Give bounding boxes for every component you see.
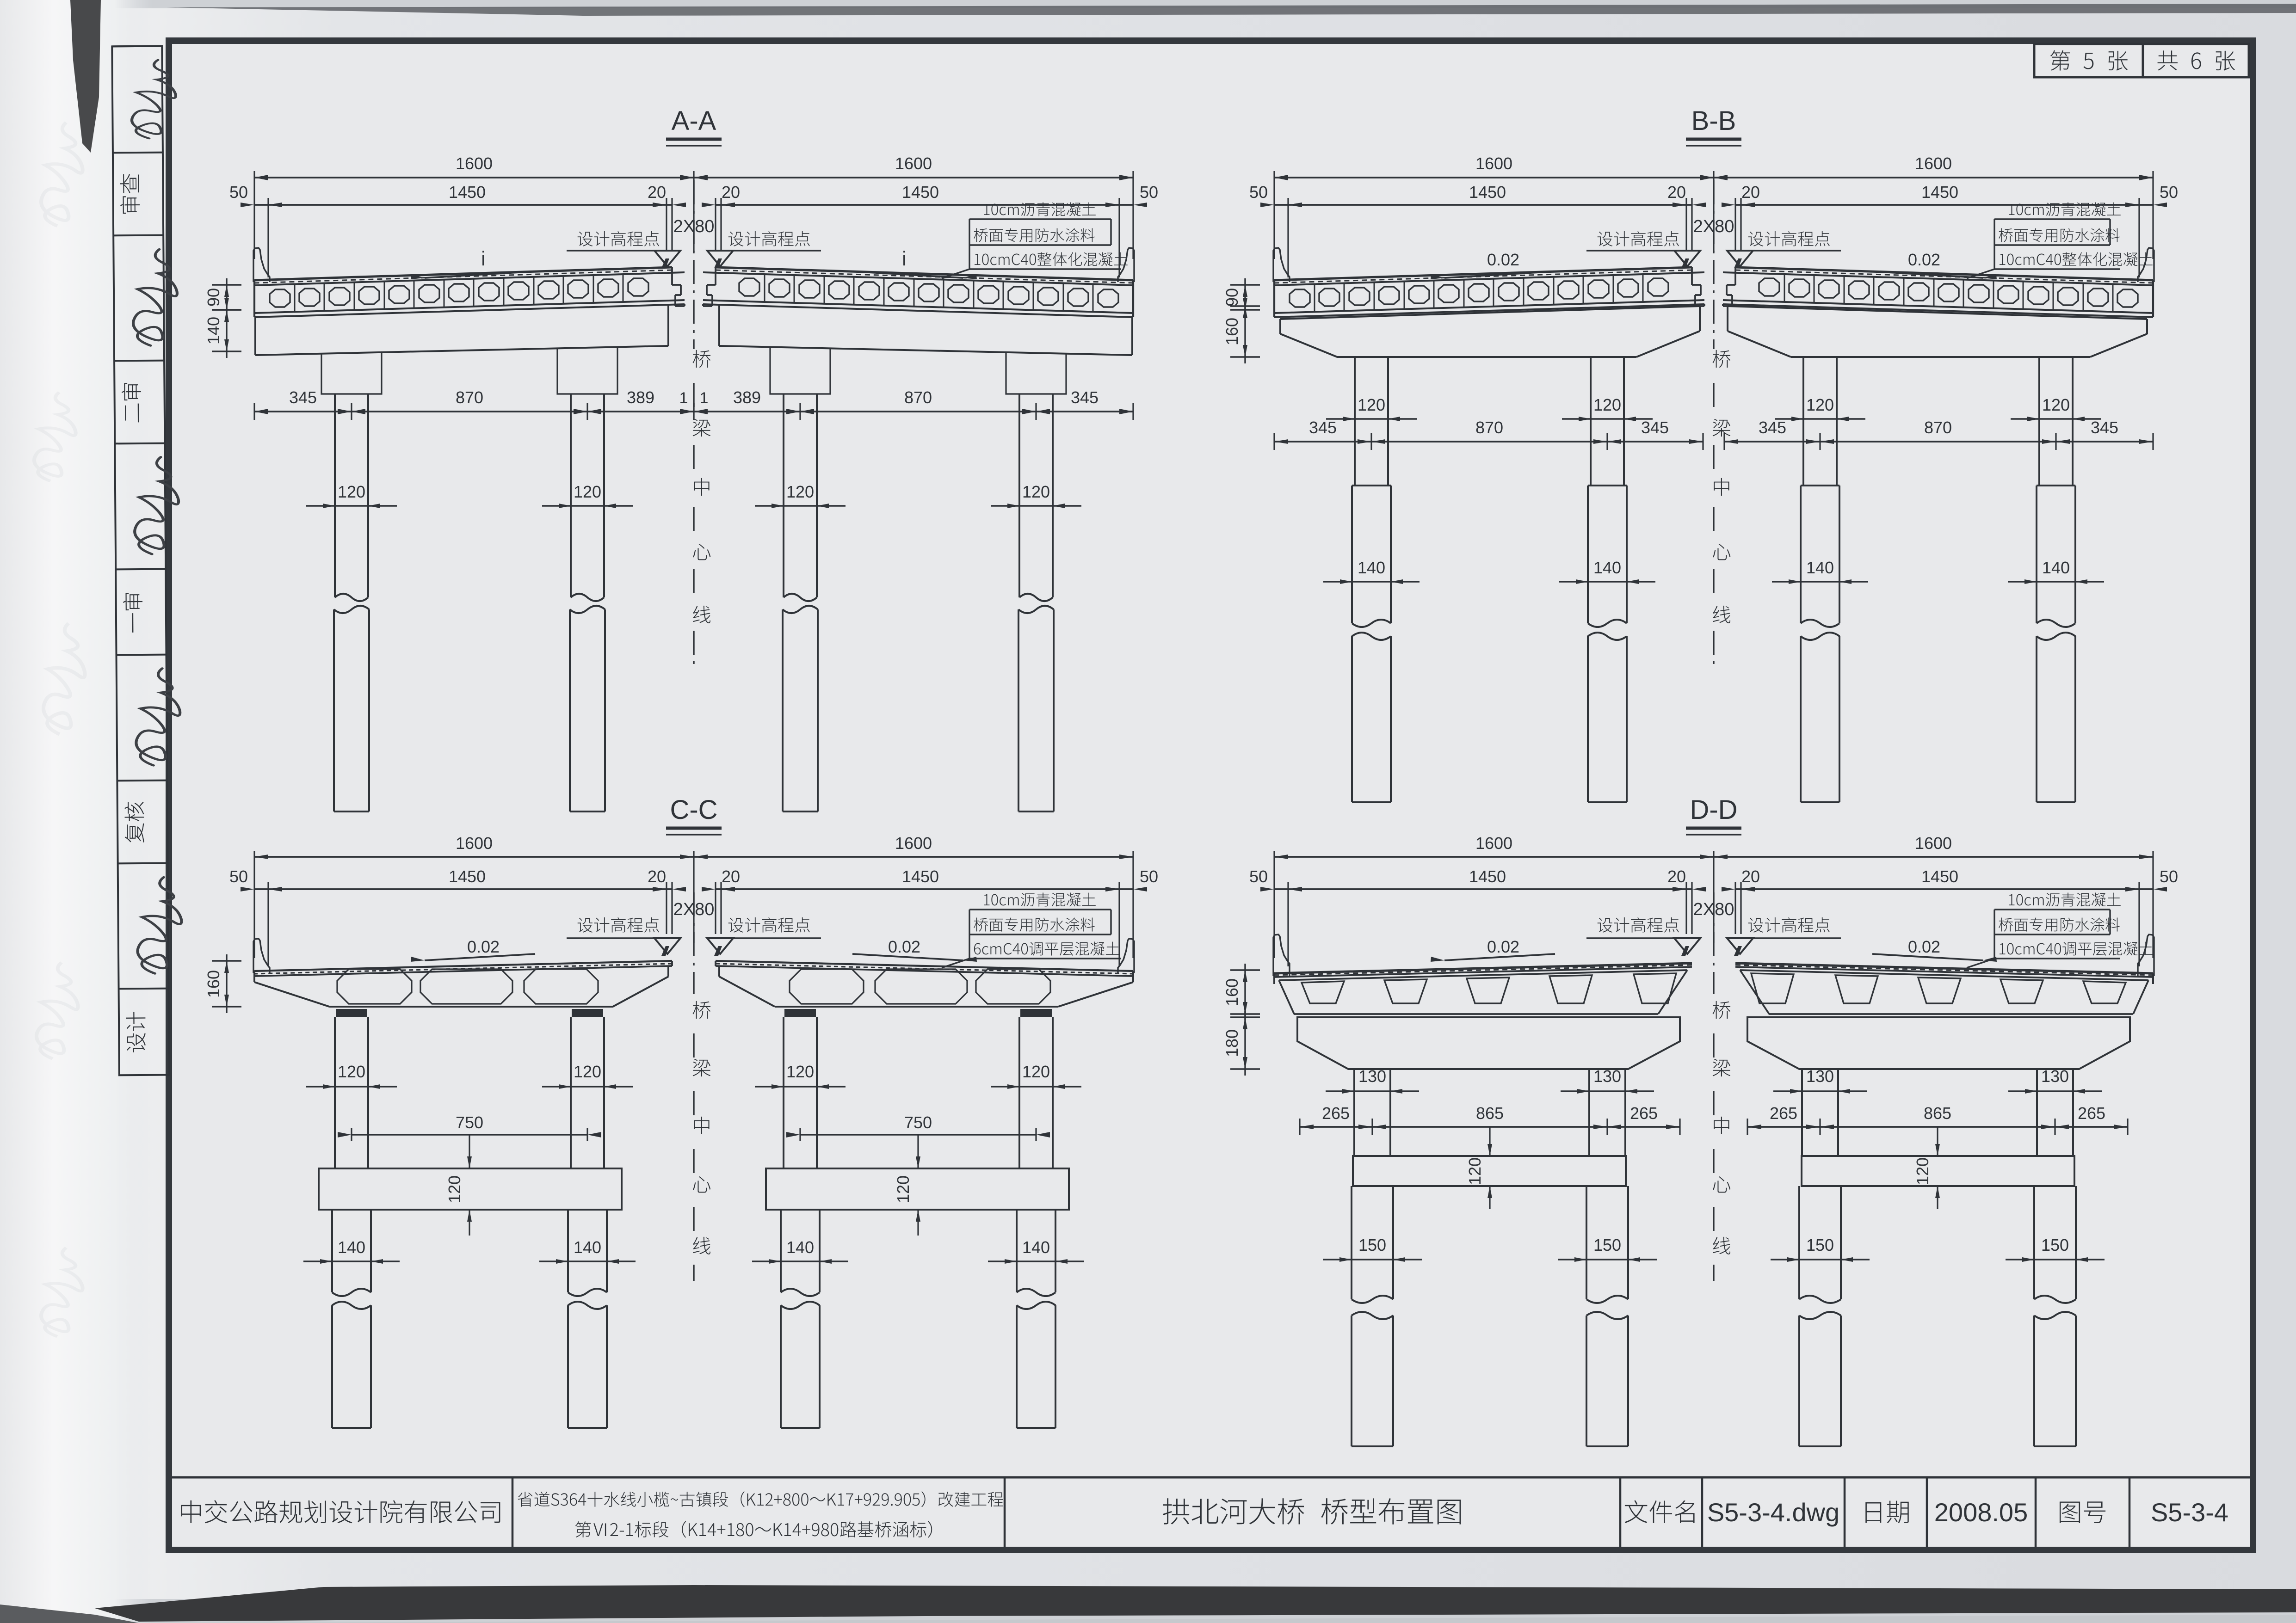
svg-text:140: 140 bbox=[338, 1238, 365, 1257]
svg-text:870: 870 bbox=[1924, 418, 1952, 437]
svg-text:A-A: A-A bbox=[672, 106, 716, 136]
svg-text:870: 870 bbox=[904, 388, 932, 407]
svg-text:0.02: 0.02 bbox=[467, 937, 500, 956]
svg-text:180: 180 bbox=[1222, 1029, 1241, 1057]
svg-text:265: 265 bbox=[1630, 1104, 1658, 1123]
svg-text:1600: 1600 bbox=[456, 834, 493, 853]
svg-text:50: 50 bbox=[229, 183, 248, 202]
svg-text:20: 20 bbox=[1667, 183, 1686, 202]
svg-text:90: 90 bbox=[204, 288, 223, 307]
svg-text:1450: 1450 bbox=[902, 183, 939, 202]
svg-text:140: 140 bbox=[1022, 1238, 1050, 1257]
svg-text:160: 160 bbox=[204, 970, 223, 998]
svg-text:865: 865 bbox=[1924, 1104, 1951, 1123]
svg-text:345: 345 bbox=[1641, 418, 1669, 437]
svg-text:1450: 1450 bbox=[449, 183, 486, 202]
svg-text:865: 865 bbox=[1476, 1104, 1504, 1123]
svg-text:2X80: 2X80 bbox=[673, 217, 715, 236]
svg-text:265: 265 bbox=[1322, 1104, 1350, 1123]
svg-text:0.02: 0.02 bbox=[888, 937, 920, 956]
svg-text:120: 120 bbox=[786, 1062, 814, 1081]
svg-text:20: 20 bbox=[1741, 867, 1760, 886]
svg-text:150: 150 bbox=[2041, 1236, 2069, 1254]
svg-text:1: 1 bbox=[679, 389, 688, 407]
svg-text:120: 120 bbox=[574, 1062, 601, 1081]
svg-text:50: 50 bbox=[1249, 867, 1268, 886]
svg-text:130: 130 bbox=[2041, 1067, 2069, 1086]
svg-text:140: 140 bbox=[1806, 558, 1834, 577]
svg-text:345: 345 bbox=[1309, 418, 1337, 437]
svg-text:389: 389 bbox=[627, 388, 654, 407]
svg-text:1600: 1600 bbox=[895, 154, 932, 173]
svg-text:140: 140 bbox=[2042, 558, 2070, 577]
svg-text:20: 20 bbox=[722, 867, 740, 886]
svg-text:120: 120 bbox=[2042, 395, 2070, 414]
svg-text:20: 20 bbox=[1741, 183, 1760, 202]
svg-text:S5-3-4.dwg: S5-3-4.dwg bbox=[1707, 1498, 1839, 1527]
svg-text:1600: 1600 bbox=[1915, 154, 1952, 173]
svg-text:2008.05: 2008.05 bbox=[1934, 1498, 2028, 1527]
svg-text:50: 50 bbox=[2160, 867, 2178, 886]
svg-text:120: 120 bbox=[445, 1175, 464, 1203]
svg-text:345: 345 bbox=[2091, 418, 2118, 437]
svg-text:120: 120 bbox=[1022, 482, 1050, 501]
svg-text:20: 20 bbox=[722, 183, 740, 202]
svg-text:150: 150 bbox=[1593, 1236, 1621, 1254]
svg-text:D-D: D-D bbox=[1690, 795, 1737, 825]
svg-text:C-C: C-C bbox=[670, 795, 717, 825]
svg-text:120: 120 bbox=[338, 482, 365, 501]
svg-text:160: 160 bbox=[1222, 978, 1241, 1006]
svg-text:0.02: 0.02 bbox=[1908, 937, 1940, 956]
svg-text:750: 750 bbox=[456, 1113, 483, 1132]
svg-text:1600: 1600 bbox=[456, 154, 493, 173]
svg-text:870: 870 bbox=[456, 388, 483, 407]
svg-text:120: 120 bbox=[894, 1175, 913, 1203]
svg-text:20: 20 bbox=[648, 867, 666, 886]
svg-text:20: 20 bbox=[648, 183, 666, 202]
svg-text:120: 120 bbox=[1913, 1157, 1932, 1185]
svg-text:90: 90 bbox=[1222, 288, 1241, 307]
svg-text:0.02: 0.02 bbox=[1908, 250, 1940, 269]
svg-text:50: 50 bbox=[1140, 183, 1158, 202]
svg-text:140: 140 bbox=[786, 1238, 814, 1257]
svg-text:1450: 1450 bbox=[902, 867, 939, 886]
svg-text:50: 50 bbox=[1249, 183, 1268, 202]
svg-text:345: 345 bbox=[1759, 418, 1786, 437]
svg-text:345: 345 bbox=[1071, 388, 1099, 407]
svg-text:B-B: B-B bbox=[1691, 106, 1736, 136]
svg-text:1450: 1450 bbox=[1469, 867, 1506, 886]
svg-text:345: 345 bbox=[289, 388, 317, 407]
svg-text:870: 870 bbox=[1475, 418, 1503, 437]
svg-text:1450: 1450 bbox=[1921, 867, 1958, 886]
svg-text:140: 140 bbox=[1358, 558, 1385, 577]
svg-text:130: 130 bbox=[1806, 1067, 1834, 1086]
svg-text:1450: 1450 bbox=[1921, 183, 1958, 202]
svg-text:i: i bbox=[902, 247, 907, 270]
svg-text:1600: 1600 bbox=[1475, 154, 1512, 173]
svg-text:120: 120 bbox=[338, 1062, 365, 1081]
svg-text:140: 140 bbox=[204, 317, 223, 344]
svg-text:265: 265 bbox=[2078, 1104, 2105, 1123]
svg-text:2X80: 2X80 bbox=[673, 900, 715, 919]
svg-text:120: 120 bbox=[574, 482, 601, 501]
svg-text:1: 1 bbox=[700, 389, 709, 407]
svg-text:1600: 1600 bbox=[895, 834, 932, 853]
svg-text:150: 150 bbox=[1806, 1236, 1834, 1254]
svg-text:1600: 1600 bbox=[1475, 834, 1512, 853]
svg-text:0.02: 0.02 bbox=[1487, 937, 1519, 956]
svg-text:50: 50 bbox=[1140, 867, 1158, 886]
svg-text:120: 120 bbox=[786, 482, 814, 501]
svg-text:120: 120 bbox=[1465, 1157, 1484, 1185]
svg-text:130: 130 bbox=[1593, 1067, 1621, 1086]
svg-text:120: 120 bbox=[1022, 1062, 1050, 1081]
svg-text:750: 750 bbox=[904, 1113, 932, 1132]
svg-text:1450: 1450 bbox=[1469, 183, 1506, 202]
svg-text:50: 50 bbox=[2160, 183, 2178, 202]
svg-text:2X80: 2X80 bbox=[1693, 900, 1734, 919]
svg-text:0.02: 0.02 bbox=[1487, 250, 1519, 269]
svg-text:20: 20 bbox=[1667, 867, 1686, 886]
svg-text:160: 160 bbox=[1222, 318, 1241, 345]
svg-text:50: 50 bbox=[229, 867, 248, 886]
svg-text:150: 150 bbox=[1358, 1236, 1386, 1254]
svg-text:140: 140 bbox=[574, 1238, 601, 1257]
svg-text:1600: 1600 bbox=[1915, 834, 1952, 853]
svg-text:120: 120 bbox=[1806, 395, 1834, 414]
svg-text:120: 120 bbox=[1358, 395, 1385, 414]
svg-text:389: 389 bbox=[733, 388, 761, 407]
svg-text:265: 265 bbox=[1770, 1104, 1797, 1123]
svg-text:120: 120 bbox=[1593, 395, 1621, 414]
svg-text:i: i bbox=[481, 247, 486, 270]
svg-text:1450: 1450 bbox=[449, 867, 486, 886]
svg-text:2X80: 2X80 bbox=[1693, 217, 1734, 236]
svg-text:140: 140 bbox=[1593, 558, 1621, 577]
svg-text:S5-3-4: S5-3-4 bbox=[2151, 1498, 2228, 1527]
svg-text:130: 130 bbox=[1358, 1067, 1386, 1086]
